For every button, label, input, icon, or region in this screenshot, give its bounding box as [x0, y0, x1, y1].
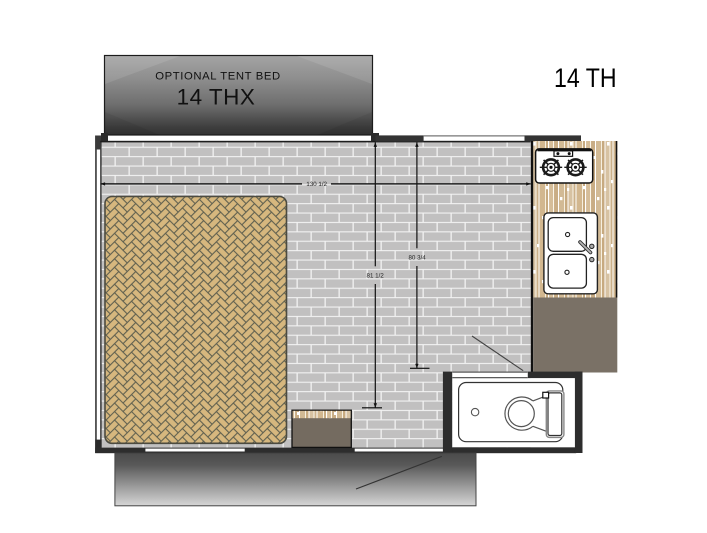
svg-text:14 TH: 14 TH: [554, 64, 617, 94]
svg-text:OPTIONAL TENT BED: OPTIONAL TENT BED: [155, 71, 281, 83]
svg-text:14 THX: 14 THX: [177, 85, 256, 110]
